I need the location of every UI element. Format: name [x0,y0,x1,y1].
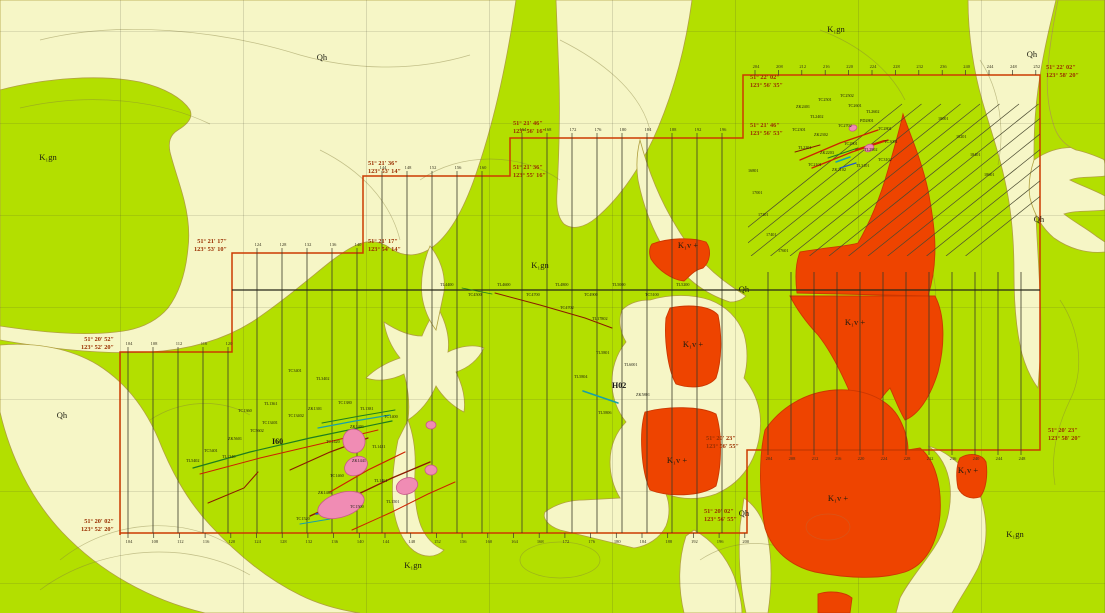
tiny-label: TL4400 [440,282,454,287]
tiny-label: TL1361 [264,401,278,406]
tick-label: 208 [776,64,784,69]
tiny-label: TL1421 [372,444,386,449]
tick-label: 236 [950,456,958,461]
coord-label-lon: 123° 56′ 16″ [513,128,546,135]
tick-label: 184 [645,127,653,132]
tick-label: 244 [996,456,1004,461]
coord-label-lon: 123° 52′ 20″ [81,526,114,533]
tick-label: 248 [1019,456,1027,461]
tick-label: 148 [405,165,413,170]
tiny-label: TL1461 [374,478,388,483]
coord-label-lon: 123° 53′ 14″ [368,168,401,175]
tiny-label: TC3401 [288,368,302,373]
tick-label: 140 [355,242,363,247]
tiny-label: TL17802 [592,316,608,321]
unit-label: K₁gn [404,560,422,570]
unit-label: K₁v + [828,493,848,503]
tiny-label: TL6001 [624,362,638,367]
green-k1gn-region [0,78,191,334]
tick-label: 244 [987,64,995,69]
tiny-label: TL3101 [856,163,870,168]
unit-label: K₁gn [827,24,845,34]
tiny-label: TC1420 [326,439,340,444]
unit-label: K₁gn [531,260,549,270]
tick-label: 132 [305,242,312,247]
tiny-label: ZK2302 [814,132,828,137]
tiny-label: TL5200 [676,282,690,287]
unit-label: Qh [739,508,750,518]
tick-label: 108 [151,341,159,346]
coord-label-lat: 51° 21′ 46″ [750,122,780,129]
tiny-label: TC3001 [884,139,898,144]
unit-label: Qh [1034,214,1045,224]
tiny-label: ZK2401 [796,104,810,109]
tick-label: 248 [1010,64,1018,69]
unit-label: K₁v + [678,240,698,250]
tick-label: 232 [916,64,923,69]
tiny-label: 18001 [938,116,948,121]
tick-label: 120 [226,341,234,346]
tick-label: 176 [595,127,603,132]
tiny-label: TC1520 [296,516,310,521]
tick-label: 124 [255,242,263,247]
tiny-label: ZK1481 [318,490,332,495]
tick-label: 192 [691,539,698,544]
unit-label: K₁gn [39,152,57,162]
tick-label: 236 [940,64,948,69]
coord-label-lat: 51° 22′ 02″ [1046,64,1076,71]
tiny-label: TC5401 [204,448,218,453]
tiny-label: TL2201 [798,145,812,150]
tick-label: 140 [357,539,365,544]
tick-label: 172 [563,539,570,544]
tick-label: 152 [434,539,441,544]
red-k1v-region [818,592,852,613]
tiny-label: TC4500 [468,292,482,297]
tick-label: 196 [720,127,728,132]
coord-label-lon: 123° 56′ 53″ [750,130,783,137]
coord-label-lon: 123° 54′ 14″ [368,246,401,253]
red-k1v-region [957,455,987,498]
tick-label: 168 [537,539,545,544]
coord-label-lon: 123° 53′ 10″ [194,246,227,253]
coord-label-lat: 51° 20′ 02″ [84,518,114,525]
coord-label-lon: 123° 55′ 16″ [513,172,546,179]
tiny-label: TC2702 [838,123,852,128]
tiny-label: 16801 [748,168,758,173]
tick-label: 116 [201,341,208,346]
coord-label-lon: 123° 56′ 55″ [704,516,737,523]
tick-label: 116 [203,539,210,544]
coord-label-lon: 123° 58′ 20″ [1048,435,1081,442]
pink-ore-body [426,421,436,429]
tick-label: 220 [846,64,854,69]
coord-label-lat: 51° 21′ 17″ [368,238,398,245]
tiny-label: TC2601 [848,103,862,108]
tick-label: 112 [177,539,184,544]
coord-label-lat: 51° 21′ 17″ [197,238,227,245]
tick-label: 156 [455,165,463,170]
tiny-label: ZK5801 [636,392,650,397]
tiny-label: 18601 [984,172,994,177]
tick-label: 128 [280,539,288,544]
tick-label: 212 [812,456,819,461]
tiny-label: ZK1401 [350,424,364,429]
tiny-label: TL2602 [866,109,880,114]
tiny-label: TC2502 [840,93,854,98]
tick-label: 196 [717,539,725,544]
tiny-label: TC2801 [878,126,892,131]
tiny-label: TC1400 [384,414,398,419]
tick-label: 180 [620,127,628,132]
coord-label-lat: 51° 21′ 36″ [513,164,543,171]
tiny-label: TC2301 [792,127,806,132]
tick-label: 216 [823,64,831,69]
tick-label: 108 [151,539,159,544]
tick-label: 156 [460,539,468,544]
feature-label: I60 [272,437,283,446]
tiny-label: TL2902 [864,147,878,152]
tiny-label: TC1380 [338,400,352,405]
tick-label: 152 [430,165,437,170]
tick-label: 104 [126,341,134,346]
tick-label: 228 [904,456,912,461]
tiny-label: 17201 [758,212,768,217]
tiny-label: TC2501 [818,97,832,102]
tick-label: 124 [254,539,262,544]
tiny-label: TL1381 [360,406,374,411]
tiny-label: 17401 [766,232,776,237]
tick-label: 132 [306,539,313,544]
tiny-label: TL2402 [810,114,824,119]
tiny-label: 18201 [956,134,966,139]
tiny-label: TL3402 [316,376,330,381]
tiny-label: TC13402 [288,413,304,418]
tick-label: 228 [893,64,901,69]
tiny-label: PD2801 [860,118,874,123]
tick-label: 128 [280,242,288,247]
tick-label: 188 [670,127,678,132]
tiny-label: ZK1301 [308,406,322,411]
coord-label-lon: 123° 56′ 35″ [750,82,783,89]
tick-label: 240 [973,456,981,461]
tick-label: 204 [753,64,761,69]
coord-label-lat: 51° 20′ 23″ [706,435,736,442]
tiny-label: TL4600 [497,282,511,287]
tick-label: 224 [870,64,878,69]
tiny-label: ZK2203 [820,150,834,155]
tiny-label: TC2901 [844,141,858,146]
unit-label: Qh [317,52,328,62]
tick-label: 172 [570,127,577,132]
tiny-label: TC4900 [584,292,598,297]
tick-label: 224 [881,456,889,461]
tick-label: 252 [1033,64,1040,69]
tiny-label: TC1500 [350,504,364,509]
tick-label: 104 [126,539,134,544]
tick-label: 112 [176,341,183,346]
tiny-label: TC3102 [878,157,892,162]
tick-label: 160 [485,539,493,544]
tiny-label: ZK5601 [228,436,242,441]
tick-label: 136 [330,242,338,247]
tick-label: 212 [799,64,806,69]
unit-label: K₁gn [1006,529,1024,539]
coord-label-lat: 51° 22′ 02″ [750,74,780,81]
tick-label: 232 [927,456,934,461]
tick-label: 204 [766,456,774,461]
red-k1v-region [642,408,721,495]
feature-label: H02 [612,381,626,390]
tiny-label: TC2101 [808,162,822,167]
tiny-label: TL5806 [598,410,612,415]
tiny-label: TC5602 [250,428,264,433]
coord-label-lat: 51° 20′ 02″ [704,508,734,515]
tick-label: 200 [742,539,750,544]
tiny-label: TL1501 [386,499,400,504]
tiny-label: 18401 [970,152,980,157]
unit-label: K₁v + [667,455,687,465]
unit-label: Qh [1027,49,1038,59]
map-canvas: 1041081121161201241281321361401441481521… [0,0,1105,613]
geological-map: 1041081121161201241281321361401441481521… [0,0,1105,613]
unit-label: Qh [739,284,750,294]
tiny-label: TL5801 [596,350,610,355]
tiny-label: TL5804 [574,374,588,379]
tiny-label: TC4700 [526,292,540,297]
tiny-label: TC1460 [330,473,344,478]
tiny-label: TL5000 [612,282,626,287]
tiny-label: TL5402 [186,458,200,463]
tick-label: 180 [614,539,622,544]
tick-label: 216 [835,456,843,461]
tiny-label: TC1360 [238,408,252,413]
unit-label: K₁v + [958,465,978,475]
tick-label: 184 [640,539,648,544]
tick-label: 164 [511,539,519,544]
tick-label: 240 [963,64,971,69]
tick-label: 188 [665,539,673,544]
unit-label: Qh [57,410,68,420]
tick-label: 192 [695,127,702,132]
tiny-label: TC13401 [262,420,278,425]
tick-label: 144 [383,539,391,544]
tiny-label: ZK1441 [352,458,366,463]
tick-label: 220 [858,456,866,461]
tick-label: 176 [588,539,596,544]
tiny-label: 17001 [752,190,762,195]
tiny-label: ZK2102 [832,167,846,172]
tick-label: 160 [480,165,488,170]
coord-label-lat: 51° 20′ 23″ [1048,427,1078,434]
unit-label: K₁v + [845,317,865,327]
coord-label-lat: 51° 21′ 46″ [513,120,543,127]
tick-label: 208 [789,456,797,461]
unit-label: K₁v + [683,339,703,349]
tiny-label: TL1340 [222,454,236,459]
tick-label: 120 [228,539,236,544]
coord-label-lon: 123° 52′ 20″ [81,344,114,351]
tiny-label: TC4702 [560,305,574,310]
tiny-label: 17601 [778,248,788,253]
coord-label-lon: 123° 56′ 55″ [706,443,739,450]
tiny-label: TL4800 [555,282,569,287]
pink-ore-body [425,465,437,475]
coord-label-lat: 51° 20′ 52″ [84,336,114,343]
tick-label: 148 [408,539,416,544]
coord-label-lon: 123° 58′ 20″ [1046,72,1079,79]
tick-label: 136 [331,539,339,544]
tiny-label: TC5100 [645,292,659,297]
coord-label-lat: 51° 21′ 36″ [368,160,398,167]
